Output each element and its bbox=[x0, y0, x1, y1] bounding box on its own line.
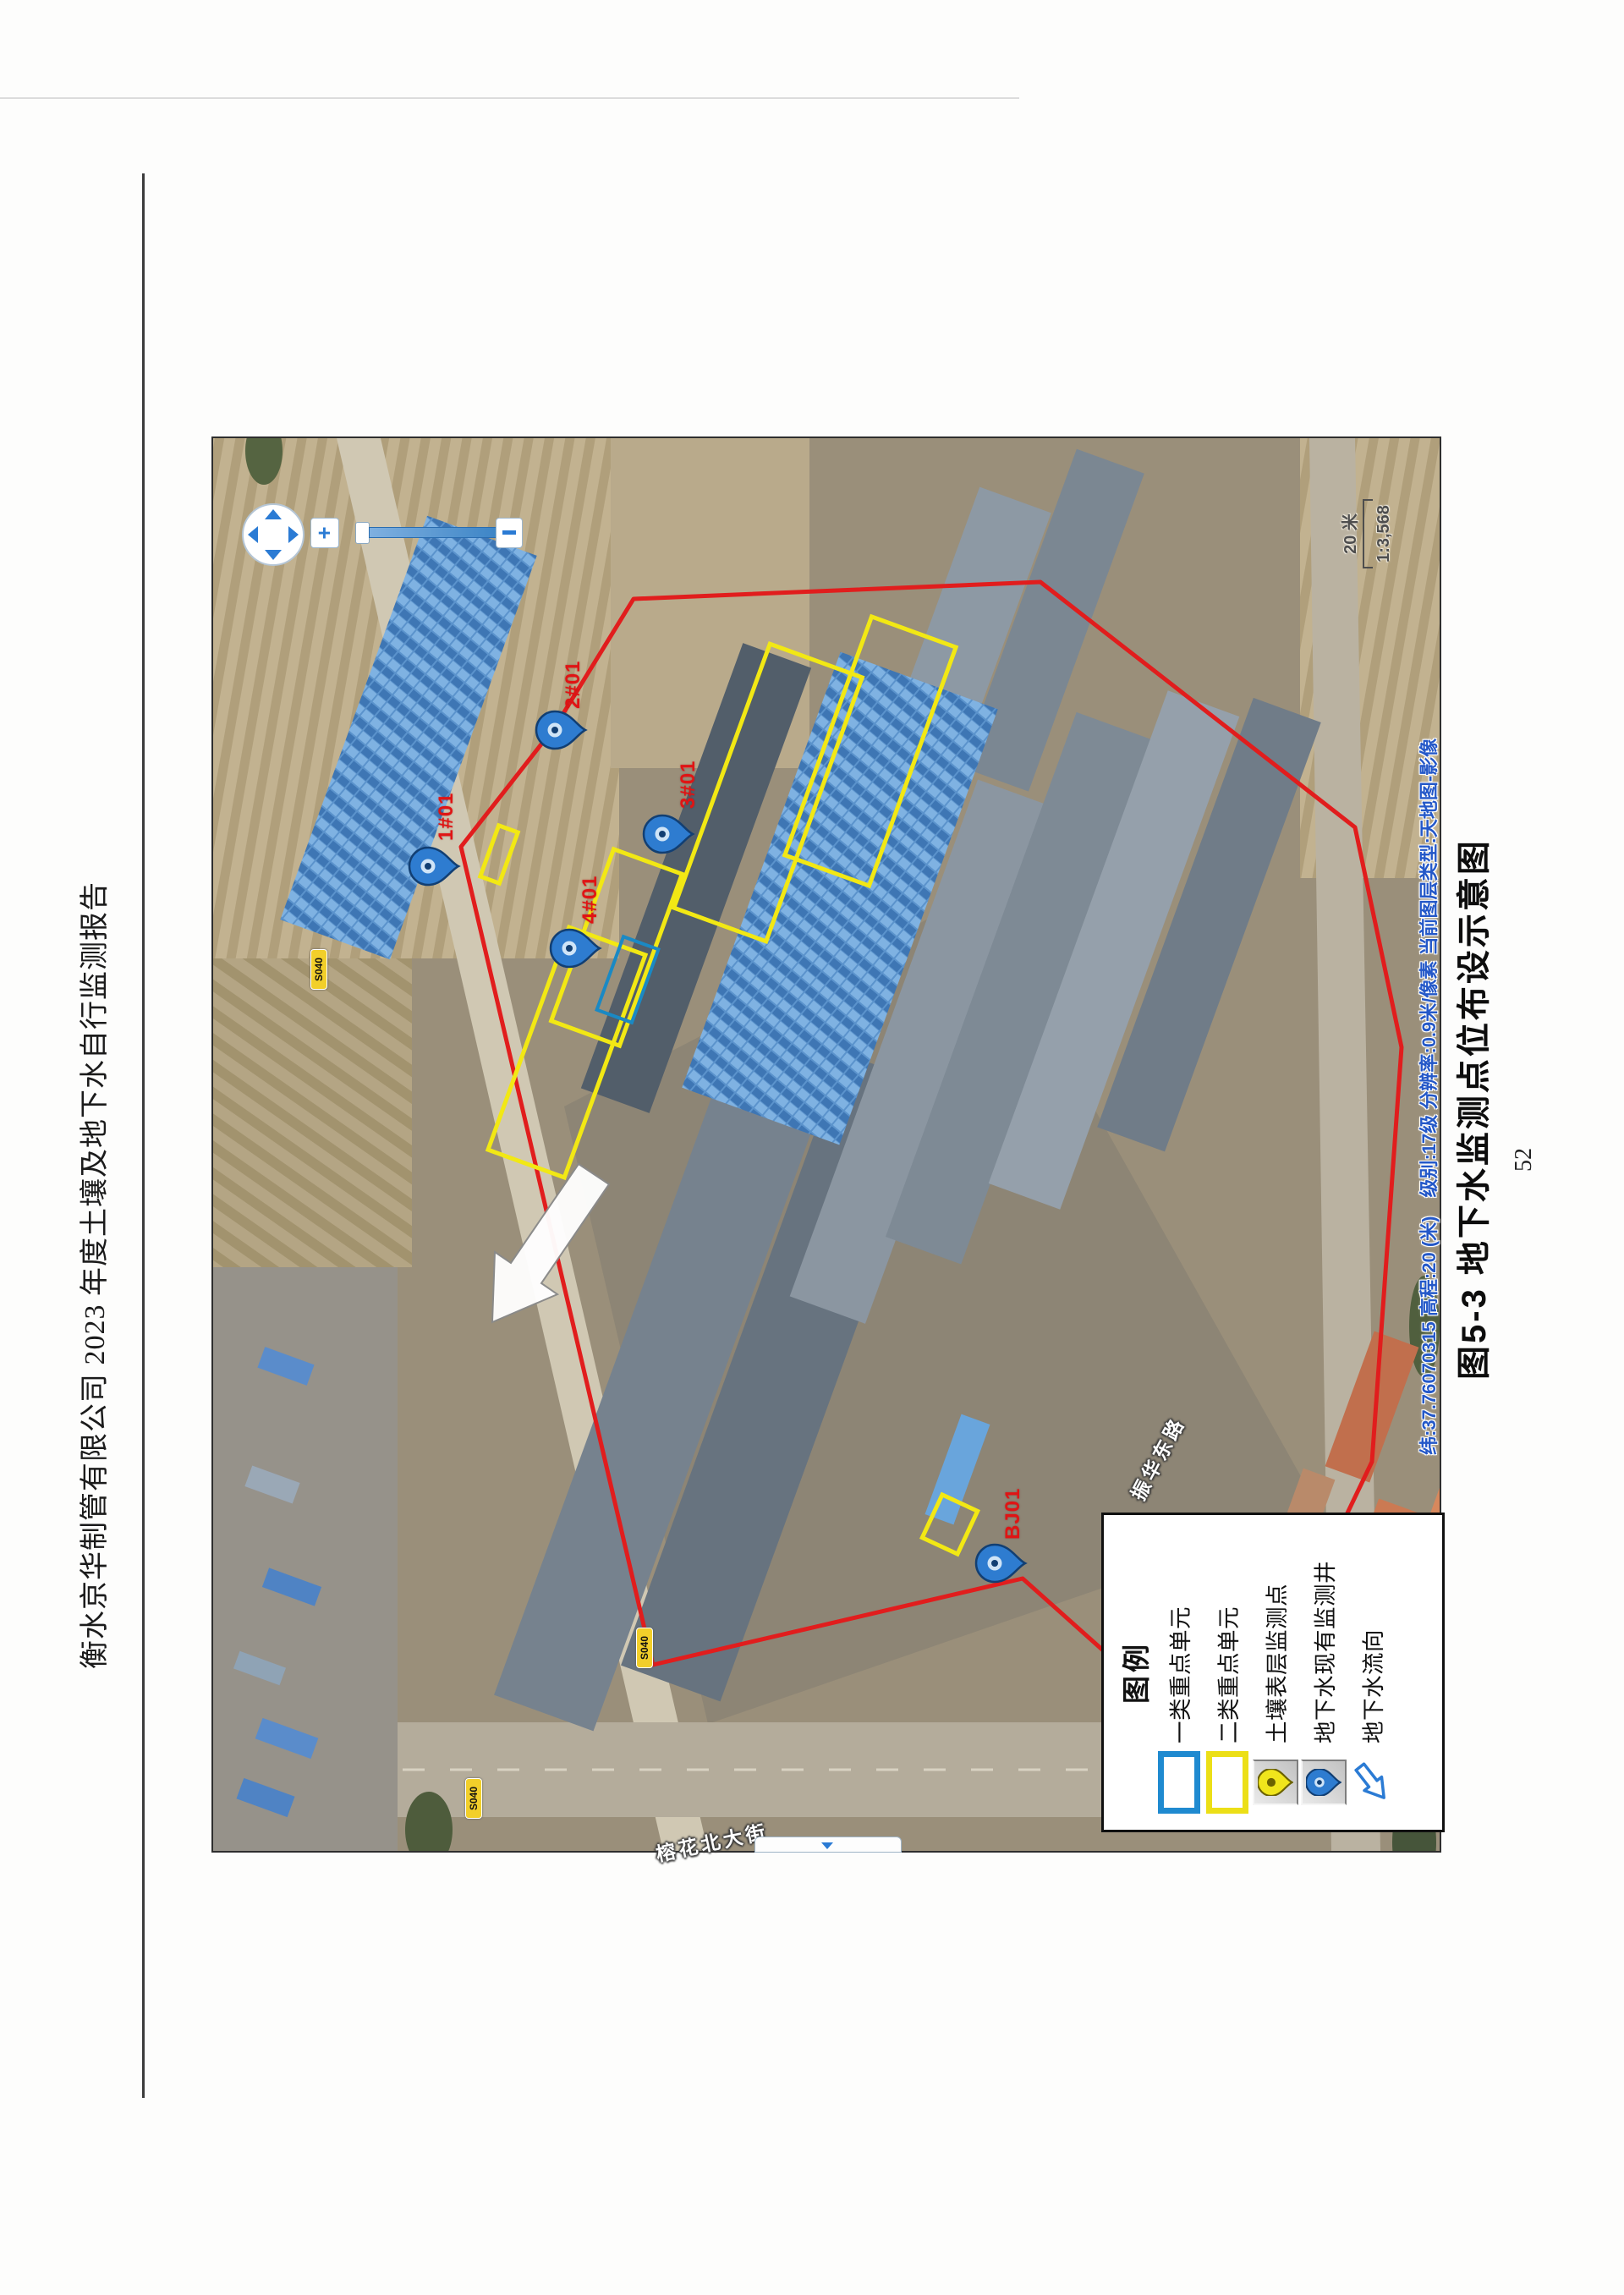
road-shield-s040-3: S040 bbox=[465, 1778, 482, 1819]
marker-label-3-01: 3#01 bbox=[677, 760, 700, 809]
map-scale: 20 米 1:3,568 bbox=[1336, 487, 1394, 580]
scale-distance-label: 20 米 bbox=[1336, 487, 1361, 580]
class1-unit-icon bbox=[1158, 1751, 1200, 1814]
soil-pin-button bbox=[1253, 1760, 1298, 1805]
legend-label: 一类重点单元 bbox=[1162, 1606, 1195, 1743]
scale-ratio: 1:3,568 bbox=[1374, 487, 1394, 580]
legend-label: 地下水现有监测井 bbox=[1307, 1561, 1340, 1743]
legend-row-class1: 一类重点单元 bbox=[1155, 1515, 1203, 1830]
report-header-title: 衡水京华制管有限公司 2023 年度土壤及地下水自行监测报告 bbox=[71, 881, 112, 1669]
legend-row-soil-point: 土壤表层监测点 bbox=[1251, 1515, 1299, 1830]
yellow-pin-icon bbox=[1258, 1769, 1293, 1796]
map-legend: 图例 一类重点单元 二类重点单元 土壤表层监测点 bbox=[1101, 1513, 1445, 1832]
class2-unit-icon bbox=[1206, 1751, 1248, 1814]
rotated-page-content: 衡水京华制管有限公司 2023 年度土壤及地下水自行监测报告 bbox=[0, 0, 1624, 2295]
flow-arrow-icon bbox=[1352, 1759, 1391, 1806]
legend-label: 土壤表层监测点 bbox=[1259, 1584, 1292, 1743]
road-shield-s040-2: S040 bbox=[310, 949, 327, 990]
marker-label-bj01: BJ01 bbox=[1001, 1488, 1025, 1540]
map-side-tab[interactable] bbox=[754, 1837, 902, 1853]
road-shield-s040-1: S040 bbox=[636, 1628, 653, 1668]
page-number: 52 bbox=[1511, 1148, 1538, 1172]
zoom-slider-track[interactable] bbox=[369, 527, 497, 538]
zoom-out-button[interactable] bbox=[496, 518, 523, 548]
satellite-map-figure: 2#01 3#01 1#01 4#01 BJ01 榕花北大街 振华东路 S040… bbox=[211, 436, 1441, 1853]
collapse-arrow-icon bbox=[821, 1842, 833, 1849]
scale-bar bbox=[1363, 499, 1373, 568]
zoom-in-button[interactable]: + bbox=[310, 518, 339, 548]
report-page: 衡水京华制管有限公司 2023 年度土壤及地下水自行监测报告 bbox=[0, 0, 1624, 2295]
marker-label-2-01: 2#01 bbox=[562, 661, 585, 709]
legend-row-flow-direction: 地下水流向 bbox=[1347, 1515, 1396, 1830]
legend-label: 地下水流向 bbox=[1355, 1629, 1388, 1743]
well-pin-button bbox=[1301, 1760, 1347, 1805]
pan-control[interactable] bbox=[241, 502, 305, 567]
zoom-slider-handle[interactable] bbox=[355, 522, 370, 544]
header-rule bbox=[142, 173, 145, 2098]
blue-pin-icon bbox=[1306, 1769, 1341, 1796]
marker-label-1-01: 1#01 bbox=[435, 793, 458, 841]
legend-row-groundwater-well: 地下水现有监测井 bbox=[1299, 1515, 1347, 1830]
legend-label: 二类重点单元 bbox=[1210, 1606, 1243, 1743]
figure-caption: 图5-3 地下水监测点位布设示意图 bbox=[1446, 838, 1495, 1380]
marker-label-4-01: 4#01 bbox=[579, 876, 602, 924]
scan-artifact-line bbox=[0, 97, 1019, 99]
map-status-bar: 纬:37.76070315 高程:20 (米) 级别:17级 分辨率:0.9米/… bbox=[1414, 427, 1441, 1455]
legend-row-class2: 二类重点单元 bbox=[1203, 1515, 1251, 1830]
legend-title: 图例 bbox=[1114, 1515, 1155, 1830]
